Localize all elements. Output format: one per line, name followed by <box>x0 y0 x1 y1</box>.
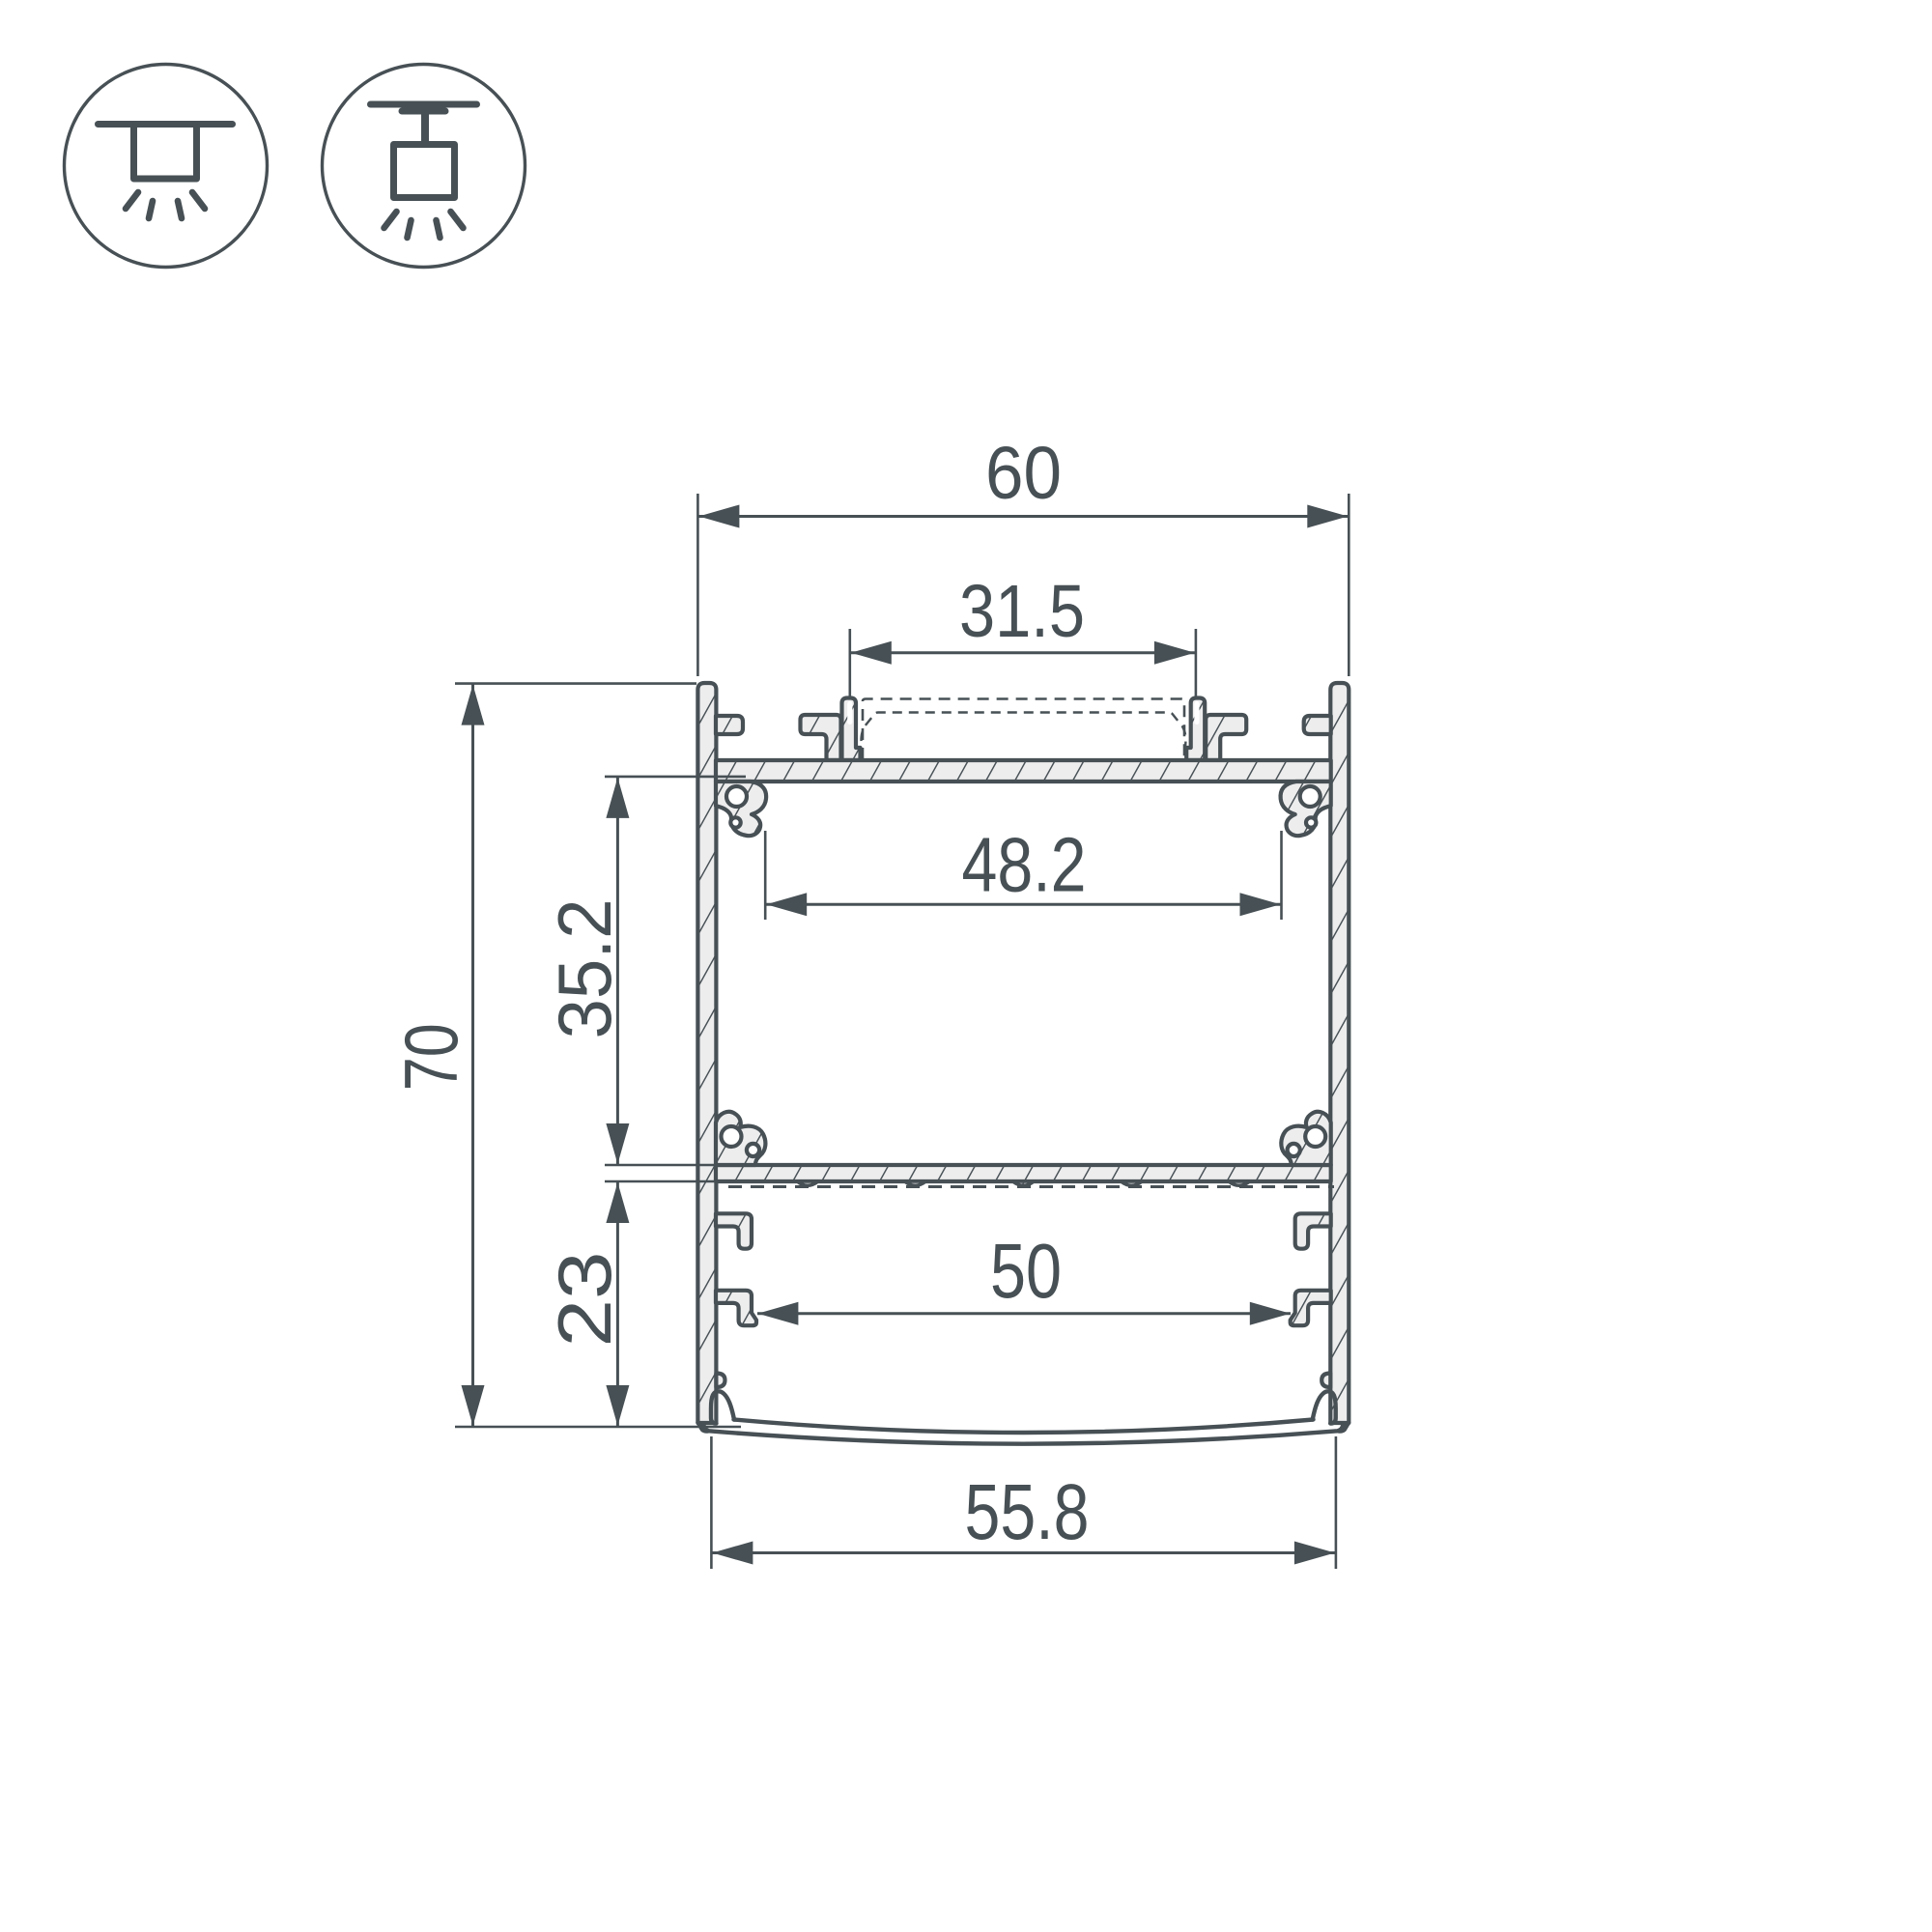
svg-text:23: 23 <box>542 1252 627 1348</box>
svg-text:35.2: 35.2 <box>542 899 627 1039</box>
svg-text:60: 60 <box>985 432 1062 515</box>
svg-text:48.2: 48.2 <box>962 822 1087 908</box>
svg-text:55.8: 55.8 <box>965 1468 1090 1556</box>
svg-text:50: 50 <box>990 1228 1062 1314</box>
svg-text:31.5: 31.5 <box>959 570 1085 653</box>
svg-text:70: 70 <box>388 1023 473 1091</box>
